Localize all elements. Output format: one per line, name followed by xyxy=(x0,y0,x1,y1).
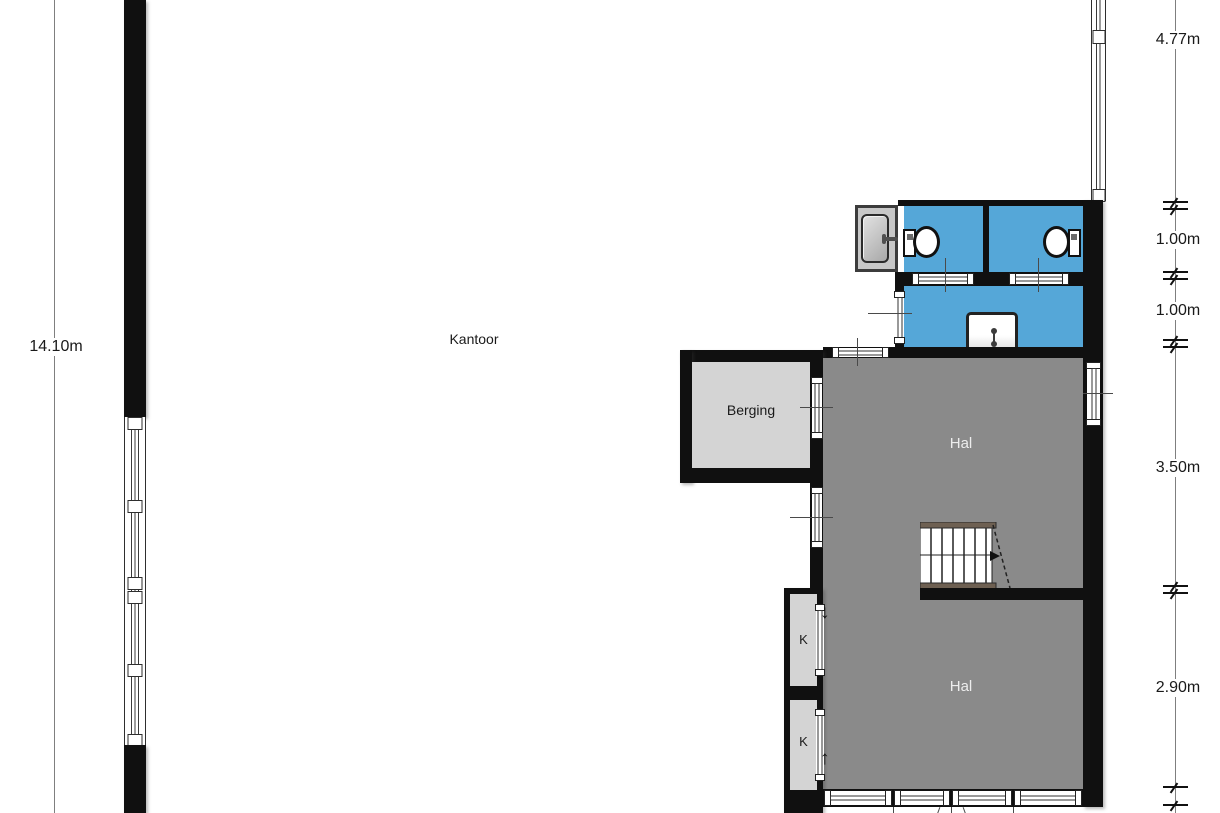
window-mullion xyxy=(128,500,143,513)
reference-line xyxy=(790,517,833,518)
room-label-kantoor: Kantoor xyxy=(424,331,524,347)
right-exterior-wall xyxy=(1083,200,1103,807)
washbasin-icon xyxy=(966,312,1018,352)
dimension-tick xyxy=(1163,208,1188,210)
faucet-icon xyxy=(884,237,898,241)
reference-line xyxy=(1083,393,1113,394)
wall-below-stairs xyxy=(920,588,1103,600)
window-mullion xyxy=(128,664,143,677)
toilet-left-door xyxy=(913,274,973,284)
reference-line xyxy=(945,258,946,292)
hall-bottom-window xyxy=(953,791,1011,805)
reference-line xyxy=(868,313,912,314)
dimension-label: 2.90m xyxy=(1147,679,1209,697)
left-wall-window xyxy=(124,417,146,745)
flush-button xyxy=(1071,234,1077,240)
window-mullion xyxy=(1092,30,1105,44)
berging-left-wall xyxy=(680,350,692,483)
door-swing-line xyxy=(937,807,941,813)
door-swing-line xyxy=(963,807,967,813)
dimension-tick xyxy=(1163,346,1188,348)
berging-door xyxy=(812,378,822,438)
dimension-tick xyxy=(1163,585,1188,587)
toilet-right-door xyxy=(1010,274,1068,284)
toilet-bowl-icon xyxy=(1043,226,1070,258)
room-label-hal-upper: Hal xyxy=(911,435,1011,452)
washroom-door xyxy=(895,292,904,343)
room-label-closet-top: K xyxy=(789,632,818,647)
dimension-tick xyxy=(1163,339,1188,341)
window-mullion xyxy=(128,591,143,604)
hall-top-window xyxy=(833,348,888,357)
reference-line xyxy=(800,407,833,408)
dimension-tick xyxy=(1163,278,1188,280)
dimension-tick xyxy=(1163,786,1188,788)
reference-line xyxy=(1013,807,1014,813)
hall-right-window xyxy=(1087,363,1100,425)
hall-bottom-window xyxy=(1015,791,1081,805)
window-mullion xyxy=(128,577,143,590)
utility-sink-icon xyxy=(855,205,898,272)
faucet-icon xyxy=(993,331,995,344)
dimension-tick xyxy=(1163,271,1188,273)
staircase-icon xyxy=(920,522,1012,590)
flush-button xyxy=(907,234,913,240)
hall-bottom-window xyxy=(895,791,949,805)
berging-bottom-wall xyxy=(680,468,823,483)
toilet-bowl-icon xyxy=(913,226,940,258)
window-mullion xyxy=(128,417,143,430)
arrow-down-icon: ↓ xyxy=(820,603,830,622)
toilet-icon xyxy=(1068,229,1081,257)
left-wall-top xyxy=(124,0,146,417)
dimension-label-left: 14.10m xyxy=(22,338,90,356)
dimension-line-left xyxy=(54,0,55,813)
arrow-up-icon: ↑ xyxy=(820,749,830,768)
dimension-label: 1.00m xyxy=(1147,231,1209,249)
reference-line xyxy=(1038,258,1039,292)
floor-plan: 14.10m Kantoor xyxy=(0,0,1220,813)
dimension-label: 1.00m xyxy=(1147,302,1209,320)
reference-line xyxy=(893,807,894,813)
reference-line xyxy=(857,338,858,366)
dimension-label: 3.50m xyxy=(1147,459,1209,477)
room-label-hal-lower: Hal xyxy=(911,678,1011,695)
room-label-closet-bottom: K xyxy=(789,734,818,749)
dimension-tick xyxy=(1163,201,1188,203)
dimension-tick xyxy=(1163,804,1188,806)
hall-bottom-window xyxy=(825,791,891,805)
dimension-label: 4.77m xyxy=(1147,31,1209,49)
left-wall-bottom xyxy=(124,745,146,813)
dimension-tick xyxy=(1163,592,1188,594)
room-label-berging: Berging xyxy=(701,402,801,418)
berging-top-wall xyxy=(680,350,823,362)
top-right-window xyxy=(1091,0,1106,201)
reference-line xyxy=(951,807,952,813)
